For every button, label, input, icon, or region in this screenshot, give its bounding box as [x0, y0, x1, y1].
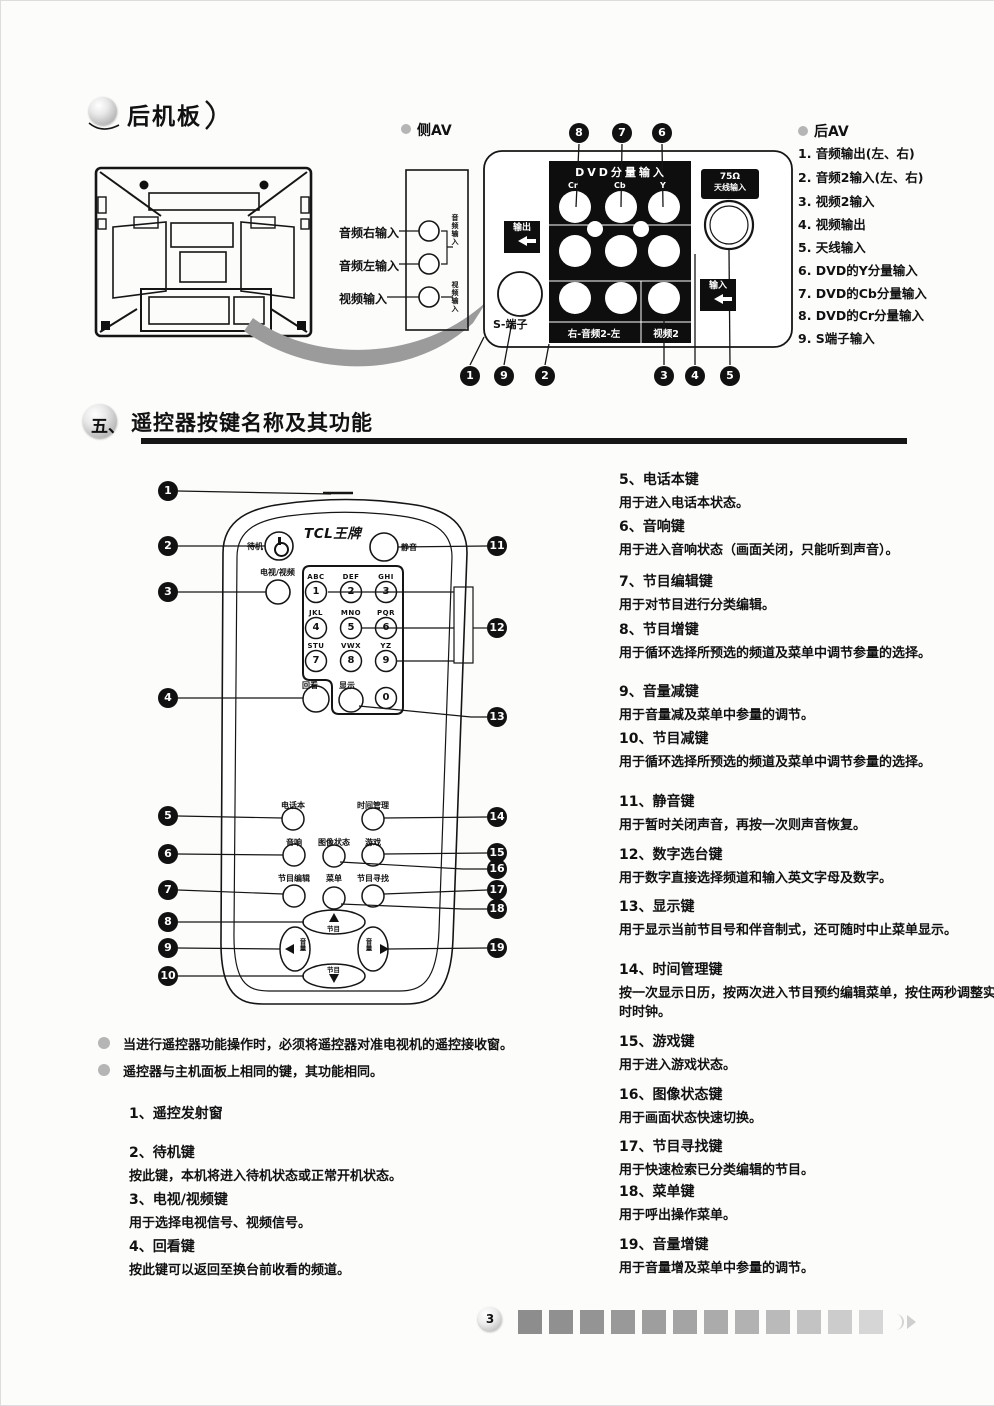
- callout-18: 18: [487, 899, 507, 919]
- item-desc: 用于循环选择所预选的频道及菜单中调节参量的选择。: [619, 644, 994, 663]
- item-title: 3、电视/视频键: [129, 1189, 589, 1209]
- item-12: 12、数字选台键 用于数字直接选择频道和输入英文字母及数字。: [619, 844, 994, 888]
- key-digit: 5: [341, 621, 361, 635]
- program-search-label: 节目寻找: [357, 873, 389, 884]
- key-digit: 3: [376, 585, 396, 599]
- rear-av-item: 9. S端子输入: [798, 328, 875, 347]
- mute-label: 静音: [401, 542, 417, 553]
- dpad-right-label: 音量: [363, 938, 373, 951]
- remote-art: [221, 493, 467, 1004]
- key-zero: 0: [376, 691, 396, 705]
- item-6: 6、音响键 用于进入音响状态（画面关闭，只能听到声音）。: [619, 516, 994, 560]
- item-2: 2、待机键 按此键，本机将进入待机状态或正常开机状态。: [129, 1142, 589, 1186]
- item-11: 11、静音键 用于暂时关闭声音，再按一次则声音恢复。: [619, 791, 994, 835]
- jack-label-audio-right: 音频右输入: [339, 224, 399, 241]
- callout-13: 13: [487, 707, 507, 727]
- item-desc: 用于呼出操作菜单。: [619, 1206, 994, 1225]
- input-tag-label: 输入: [700, 281, 736, 292]
- item-title: 10、节目减键: [619, 728, 994, 748]
- remote-callout-lines: [178, 491, 487, 976]
- output-tag: 输出: [504, 221, 540, 253]
- side-vertical-label-video: 视频输入: [450, 281, 460, 313]
- antenna-tag-line2: 天线输入: [701, 183, 759, 193]
- item-desc: 用于选择电视信号、视频信号。: [129, 1214, 589, 1233]
- key-letters: JKL: [299, 609, 333, 617]
- program-edit-label: 节目编辑: [278, 873, 310, 884]
- jack-label-audio-left: 音频左输入: [339, 257, 399, 274]
- side-av-label: 侧AV: [417, 120, 452, 140]
- item-title: 6、音响键: [619, 516, 994, 536]
- rear-av-item: 8. DVD的Cr分量输入: [798, 305, 924, 324]
- recall-label: 回看: [302, 680, 318, 691]
- dpad-left-label: 音量: [297, 938, 307, 951]
- bullet-icon: [98, 1064, 110, 1076]
- video2-label: 视频2: [643, 326, 689, 340]
- key-digit: 6: [376, 621, 396, 635]
- item-9: 9、音量减键 用于音量减及菜单中参量的调节。: [619, 681, 994, 725]
- output-tag-label: 输出: [504, 223, 540, 234]
- callout-8: 8: [158, 912, 178, 932]
- rear-av-item: 1. 音频输出(左、右): [798, 143, 915, 162]
- key-letters: VWX: [334, 642, 368, 650]
- item-title: 19、音量增键: [619, 1234, 994, 1254]
- side-vertical-label-audio: 音频输入: [450, 214, 460, 246]
- callout-7: 7: [612, 123, 632, 143]
- rear-av-item: 6. DVD的Y分量输入: [798, 260, 918, 279]
- power-icon: [274, 542, 289, 557]
- callout-5: 5: [158, 806, 178, 826]
- footer-square-strip: [518, 1310, 883, 1334]
- callout-2: 2: [535, 366, 555, 386]
- item-title: 5、电话本键: [619, 469, 994, 489]
- callout-19: 19: [487, 938, 507, 958]
- item-desc: 用于音量减及菜单中参量的调节。: [619, 706, 994, 725]
- item-1: 1、遥控发射窗: [129, 1103, 589, 1123]
- s-terminal-label: S-端子: [493, 316, 528, 332]
- item-4: 4、回看键 按此键可以返回至换台前收看的频道。: [129, 1236, 589, 1280]
- item-title: 9、音量减键: [619, 681, 994, 701]
- dvd-col-cb: Cb: [614, 181, 626, 190]
- item-title: 15、游戏键: [619, 1031, 994, 1051]
- footer-arrow-icon: [894, 1314, 904, 1330]
- up-arrow-icon: [329, 913, 339, 922]
- key-letters: DEF: [334, 573, 368, 581]
- key-letters: PQR: [369, 609, 403, 617]
- callout-10: 10: [158, 966, 178, 986]
- callout-3: 3: [158, 582, 178, 602]
- section-title: 遥控器按键名称及其功能: [131, 407, 373, 437]
- manual-page: 后机板 侧AV 音频右输入 音频左输入 视频输入 音频输入 视频输入 DVD分量…: [0, 0, 994, 1406]
- section-underline: [141, 438, 907, 444]
- left-arrow-icon: [285, 944, 294, 954]
- rear-av-label: 后AV: [814, 121, 849, 141]
- callout-12: 12: [487, 618, 507, 638]
- callout-17: 17: [487, 880, 507, 900]
- item-title: 14、时间管理键: [619, 959, 994, 979]
- page-number: 3: [478, 1307, 502, 1331]
- timer-label: 时间管理: [357, 800, 389, 811]
- callout-14: 14: [487, 807, 507, 827]
- item-8: 8、节目增键 用于循环选择所预选的频道及菜单中调节参量的选择。: [619, 619, 994, 663]
- rear-panel-title: 后机板: [127, 97, 202, 131]
- dvd-col-y: Y: [660, 181, 666, 190]
- callout-6: 6: [158, 844, 178, 864]
- item-title: 17、节目寻找键: [619, 1136, 994, 1156]
- section-number: 五、: [91, 412, 125, 437]
- item-title: 11、静音键: [619, 791, 994, 811]
- callout-11: 11: [487, 536, 507, 556]
- antenna-tag: 75Ω 天线输入: [701, 169, 759, 199]
- arrow-left-icon: [714, 294, 723, 304]
- item-title: 18、菜单键: [619, 1181, 994, 1201]
- item-19: 19、音量增键 用于音量增及菜单中参量的调节。: [619, 1234, 994, 1278]
- item-title: 12、数字选台键: [619, 844, 994, 864]
- game-label: 游戏: [365, 837, 381, 848]
- tv-video-label: 电视/视频: [260, 567, 295, 578]
- item-desc: 用于进入游戏状态。: [619, 1056, 994, 1075]
- item-10: 10、节目减键 用于循环选择所预选的频道及菜单中调节参量的选择。: [619, 728, 994, 772]
- item-desc: 用于快速检索已分类编辑的节目。: [619, 1161, 994, 1180]
- rear-av-item: 3. 视频2输入: [798, 191, 875, 210]
- item-title: 8、节目增键: [619, 619, 994, 639]
- tv-rear-art: [96, 168, 311, 336]
- display-label: 显示: [339, 680, 355, 691]
- note-2: 遥控器与主机面板上相同的键，其功能相同。: [123, 1061, 383, 1080]
- phonebook-label: 电话本: [281, 800, 305, 811]
- rear-av-item: 4. 视频输出: [798, 214, 866, 233]
- key-digit: 2: [341, 585, 361, 599]
- arrow-left-icon: [518, 236, 527, 246]
- key-digit: 8: [341, 654, 361, 668]
- bullet-icon: [798, 126, 808, 136]
- key-letters: YZ: [369, 642, 403, 650]
- item-title: 1、遥控发射窗: [129, 1103, 589, 1123]
- input-tag: 输入: [700, 279, 736, 311]
- dvd-col-cr: Cr: [568, 181, 578, 190]
- key-digit: 4: [306, 621, 326, 635]
- item-16: 16、图像状态键 用于画面状态快速切换。: [619, 1084, 994, 1128]
- item-desc: 用于画面状态快速切换。: [619, 1109, 994, 1128]
- item-3: 3、电视/视频键 用于选择电视信号、视频信号。: [129, 1189, 589, 1233]
- dpad-down-label: 节目: [327, 964, 340, 974]
- callout-1: 1: [158, 481, 178, 501]
- note-1: 当进行遥控器功能操作时，必须将遥控器对准电视机的遥控接收窗。: [123, 1034, 513, 1053]
- audio2-label: 右-音频2-左: [550, 326, 638, 340]
- rear-av-item: 5. 天线输入: [798, 237, 866, 256]
- power-label: 待机: [247, 541, 263, 552]
- rear-av-item: 2. 音频2输入(左、右): [798, 167, 923, 186]
- item-desc: 按此键可以返回至换台前收看的频道。: [129, 1261, 589, 1280]
- rear-av-item: 7. DVD的Cb分量输入: [798, 283, 927, 302]
- item-desc: 用于循环选择所预选的频道及菜单中调节参量的选择。: [619, 753, 994, 772]
- callout-4: 4: [158, 688, 178, 708]
- callout-16: 16: [487, 859, 507, 879]
- item-15: 15、游戏键 用于进入游戏状态。: [619, 1031, 994, 1075]
- dvd-panel-header: DVD分量输入: [553, 164, 689, 180]
- item-desc: 用于显示当前节目号和伴音制式，还可随时中止菜单显示。: [619, 921, 994, 940]
- callout-6: 6: [652, 123, 672, 143]
- item-18: 18、菜单键 用于呼出操作菜单。: [619, 1181, 994, 1225]
- item-title: 2、待机键: [129, 1142, 589, 1162]
- brand-logo: TCL王牌: [304, 522, 361, 542]
- callout-9: 9: [158, 938, 178, 958]
- down-arrow-icon: [329, 974, 339, 983]
- item-title: 16、图像状态键: [619, 1084, 994, 1104]
- item-desc: 用于进入音响状态（画面关闭，只能听到声音）。: [619, 541, 994, 560]
- item-14: 14、时间管理键 按一次显示日历，按两次进入节目预约编辑菜单，按住两秒调整实时时…: [619, 959, 994, 1022]
- key-letters: GHI: [369, 573, 403, 581]
- key-digit: 9: [376, 654, 396, 668]
- dpad-up-label: 节目: [327, 923, 340, 933]
- item-title: 13、显示键: [619, 896, 994, 916]
- item-title: 4、回看键: [129, 1236, 589, 1256]
- item-desc: 按一次显示日历，按两次进入节目预约编辑菜单，按住两秒调整实时时钟。: [619, 984, 994, 1022]
- jack-label-video: 视频输入: [339, 290, 387, 307]
- item-desc: 用于对节目进行分类编辑。: [619, 596, 994, 615]
- menu-label: 菜单: [326, 873, 342, 884]
- item-desc: 用于音量增及菜单中参量的调节。: [619, 1259, 994, 1278]
- item-desc: 用于进入电话本状态。: [619, 494, 994, 513]
- callout-4: 4: [685, 366, 705, 386]
- item-title: 7、节目编辑键: [619, 571, 994, 591]
- bullet-icon: [98, 1037, 110, 1049]
- key-letters: STU: [299, 642, 333, 650]
- item-7: 7、节目编辑键 用于对节目进行分类编辑。: [619, 571, 994, 615]
- key-digit: 7: [306, 654, 326, 668]
- item-desc: 按此键，本机将进入待机状态或正常开机状态。: [129, 1167, 589, 1186]
- picture-status-label: 图像状态: [318, 837, 350, 848]
- key-letters: MNO: [334, 609, 368, 617]
- callout-7: 7: [158, 880, 178, 900]
- callout-5: 5: [720, 366, 740, 386]
- power-icon: [278, 537, 281, 545]
- antenna-tag-line1: 75Ω: [701, 171, 759, 183]
- item-17: 17、节目寻找键 用于快速检索已分类编辑的节目。: [619, 1136, 994, 1180]
- bullet-icon: [401, 124, 411, 134]
- callout-3: 3: [654, 366, 674, 386]
- sound-label: 音响: [286, 837, 302, 848]
- callout-8: 8: [569, 123, 589, 143]
- item-desc: 用于暂时关闭声音，再按一次则声音恢复。: [619, 816, 994, 835]
- item-desc: 用于数字直接选择频道和输入英文字母及数字。: [619, 869, 994, 888]
- item-13: 13、显示键 用于显示当前节目号和伴音制式，还可随时中止菜单显示。: [619, 896, 994, 940]
- item-5: 5、电话本键 用于进入电话本状态。: [619, 469, 994, 513]
- callout-9: 9: [494, 366, 514, 386]
- callout-1: 1: [460, 366, 480, 386]
- key-letters: ABC: [299, 573, 333, 581]
- section-ball-icon: [89, 97, 117, 125]
- key-digit: 1: [306, 585, 326, 599]
- callout-2: 2: [158, 536, 178, 556]
- right-arrow-icon: [380, 944, 389, 954]
- footer-arrow-icon: [907, 1315, 916, 1329]
